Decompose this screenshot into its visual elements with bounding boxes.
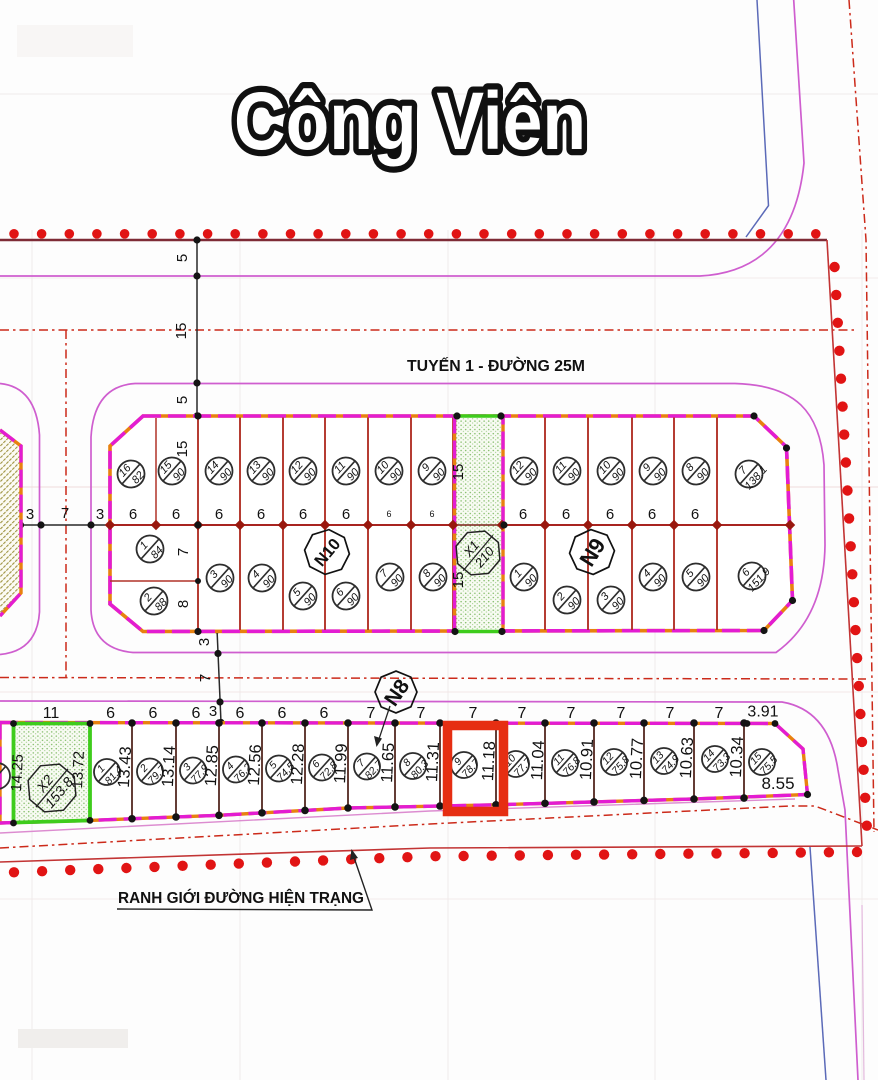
svg-text:7: 7 — [367, 705, 376, 722]
svg-text:6: 6 — [149, 705, 158, 722]
svg-text:7: 7 — [417, 705, 426, 722]
svg-text:7: 7 — [617, 705, 626, 722]
svg-text:10.77: 10.77 — [627, 738, 647, 780]
svg-text:7: 7 — [518, 705, 527, 722]
svg-text:7: 7 — [666, 705, 675, 722]
svg-text:6: 6 — [691, 506, 699, 523]
svg-text:10.34: 10.34 — [727, 736, 747, 778]
svg-text:13.43: 13.43 — [115, 746, 135, 788]
svg-text:12.85: 12.85 — [202, 745, 222, 787]
svg-text:6: 6 — [129, 506, 137, 523]
svg-text:3: 3 — [196, 638, 213, 646]
svg-text:15: 15 — [450, 572, 467, 589]
svg-text:13.14: 13.14 — [159, 745, 179, 787]
svg-text:11.31: 11.31 — [423, 742, 443, 783]
svg-text:10.63: 10.63 — [677, 737, 697, 779]
svg-text:15: 15 — [173, 323, 190, 340]
svg-text:7: 7 — [175, 548, 192, 556]
svg-text:6: 6 — [562, 506, 570, 523]
svg-text:6: 6 — [386, 509, 391, 519]
svg-text:Công Viên: Công Viên — [234, 76, 586, 167]
svg-text:6: 6 — [236, 705, 245, 722]
svg-text:RANH GIỚI ĐƯỜNG HIỆN TRẠNG: RANH GIỚI ĐƯỜNG HIỆN TRẠNG — [118, 888, 364, 907]
svg-text:14.25: 14.25 — [8, 754, 27, 792]
svg-text:8.55: 8.55 — [761, 774, 794, 793]
svg-text:6: 6 — [320, 705, 329, 722]
svg-text:3.91: 3.91 — [747, 704, 778, 721]
svg-text:11.18: 11.18 — [479, 741, 499, 782]
svg-text:6: 6 — [278, 705, 287, 722]
svg-text:6: 6 — [519, 506, 527, 523]
svg-text:6: 6 — [106, 705, 115, 722]
svg-text:6: 6 — [172, 506, 180, 523]
svg-text:11.99: 11.99 — [331, 743, 351, 784]
svg-text:5: 5 — [174, 254, 191, 262]
svg-text:7: 7 — [469, 705, 478, 722]
svg-text:12.56: 12.56 — [245, 744, 265, 786]
svg-text:TUYẾN 1 - ĐƯỜNG 25M: TUYẾN 1 - ĐƯỜNG 25M — [407, 357, 585, 375]
svg-text:6: 6 — [215, 506, 223, 523]
svg-text:3: 3 — [96, 506, 104, 523]
svg-text:11.65: 11.65 — [378, 742, 398, 783]
svg-text:6: 6 — [342, 506, 350, 523]
svg-text:6: 6 — [606, 506, 614, 523]
svg-text:6: 6 — [257, 506, 265, 523]
svg-text:15: 15 — [174, 441, 191, 458]
svg-text:5: 5 — [174, 396, 191, 404]
svg-text:15: 15 — [450, 464, 467, 481]
svg-text:7: 7 — [567, 705, 576, 722]
svg-text:7: 7 — [197, 674, 214, 682]
svg-text:6: 6 — [192, 705, 201, 722]
svg-text:3: 3 — [209, 703, 217, 720]
svg-text:6: 6 — [648, 506, 656, 523]
svg-text:10.91: 10.91 — [577, 738, 597, 780]
svg-text:3: 3 — [26, 506, 34, 523]
svg-text:6: 6 — [299, 506, 307, 523]
svg-text:11.04: 11.04 — [528, 740, 548, 781]
svg-text:12.28: 12.28 — [288, 743, 308, 785]
svg-text:7: 7 — [61, 505, 69, 522]
svg-text:8: 8 — [175, 600, 192, 608]
svg-text:11: 11 — [43, 705, 60, 722]
svg-text:6: 6 — [429, 509, 434, 519]
svg-text:7: 7 — [715, 705, 724, 722]
